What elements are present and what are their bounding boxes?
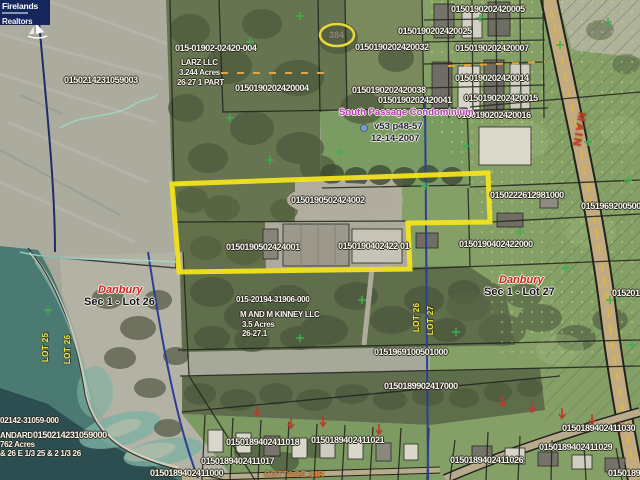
brand-name: Firelands	[2, 1, 48, 11]
brand-type: Realtors	[2, 17, 48, 26]
brand-tagline-bar	[2, 12, 28, 14]
aerial-parcel-map-image	[0, 0, 640, 480]
map-canvas: Firelands Realtors 0150214231059003 015-…	[0, 0, 640, 480]
brand-logo: Firelands Realtors	[0, 0, 50, 25]
